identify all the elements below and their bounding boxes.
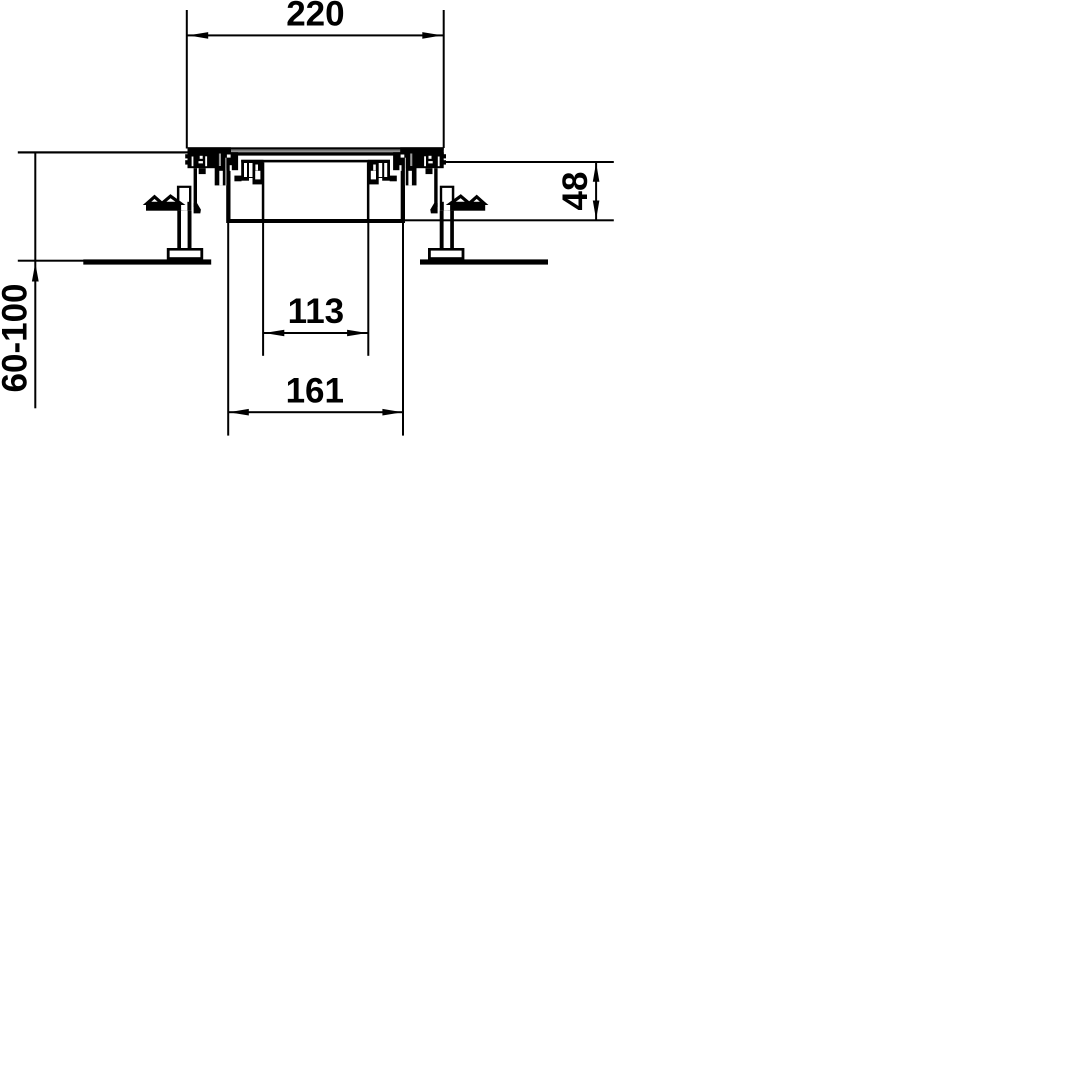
svg-text:161: 161 (286, 372, 344, 411)
svg-text:113: 113 (288, 292, 344, 331)
svg-text:220: 220 (286, 0, 344, 33)
svg-text:48: 48 (556, 172, 595, 211)
svg-text:60-100: 60-100 (0, 284, 34, 393)
